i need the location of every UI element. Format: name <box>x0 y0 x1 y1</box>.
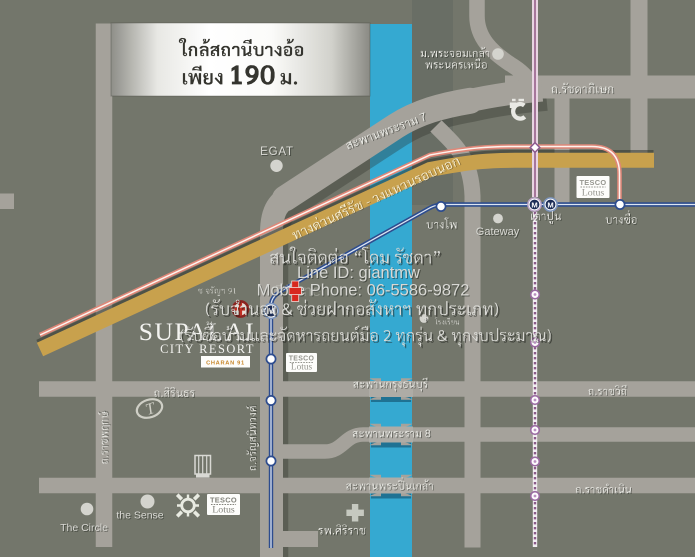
svg-text:EGAT: EGAT <box>260 146 294 158</box>
svg-text:The Circle: The Circle <box>60 522 108 534</box>
svg-text:TESCO: TESCO <box>579 178 606 187</box>
svg-text:Lotus: Lotus <box>582 187 605 198</box>
svg-text:M: M <box>531 200 537 209</box>
svg-text:Gateway: Gateway <box>476 226 520 238</box>
svg-text:Mobile Phone: 06-5586-9872: Mobile Phone: 06-5586-9872 <box>257 282 470 300</box>
svg-text:TESCO: TESCO <box>210 495 237 504</box>
svg-text:M: M <box>547 200 553 209</box>
svg-text:Lotus: Lotus <box>212 504 235 515</box>
svg-text:TESCO: TESCO <box>289 356 315 363</box>
svg-text:Line ID: giantmw: Line ID: giantmw <box>297 264 420 282</box>
svg-text:CITY RESORT: CITY RESORT <box>160 342 255 356</box>
svg-text:CHARAN 91: CHARAN 91 <box>206 360 245 366</box>
svg-text:Lotus: Lotus <box>291 363 313 373</box>
svg-text:the Sense: the Sense <box>116 510 163 522</box>
